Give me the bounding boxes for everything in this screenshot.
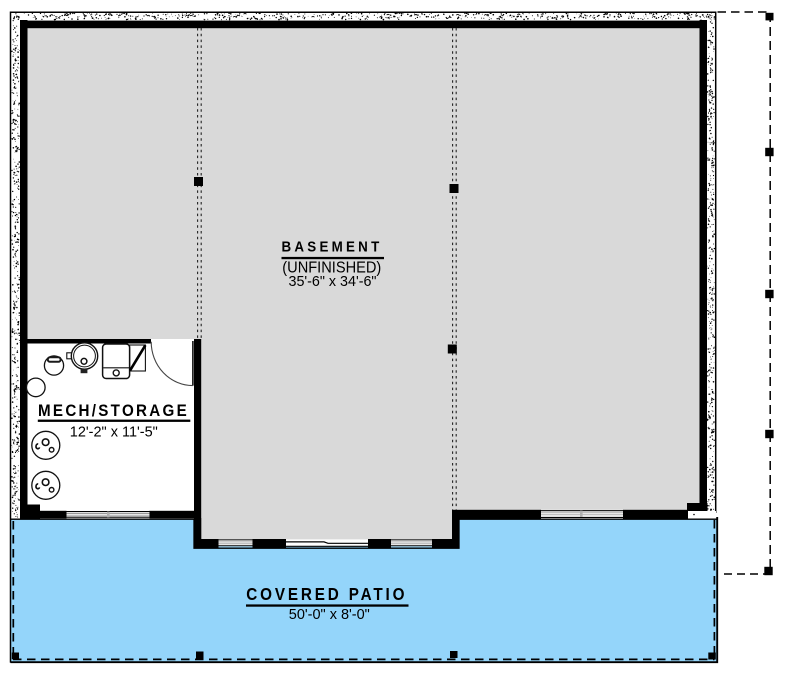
svg-text:35'-6" x 34'-6": 35'-6" x 34'-6" xyxy=(289,274,377,290)
svg-text:BASEMENT: BASEMENT xyxy=(282,239,383,255)
svg-text:50'-0" x 8'-0": 50'-0" x 8'-0" xyxy=(289,606,370,623)
svg-text:COVERED PATIO: COVERED PATIO xyxy=(246,584,407,604)
svg-text:MECH/STORAGE: MECH/STORAGE xyxy=(38,401,189,420)
svg-text:12'-2" x 11'-5": 12'-2" x 11'-5" xyxy=(70,423,158,440)
